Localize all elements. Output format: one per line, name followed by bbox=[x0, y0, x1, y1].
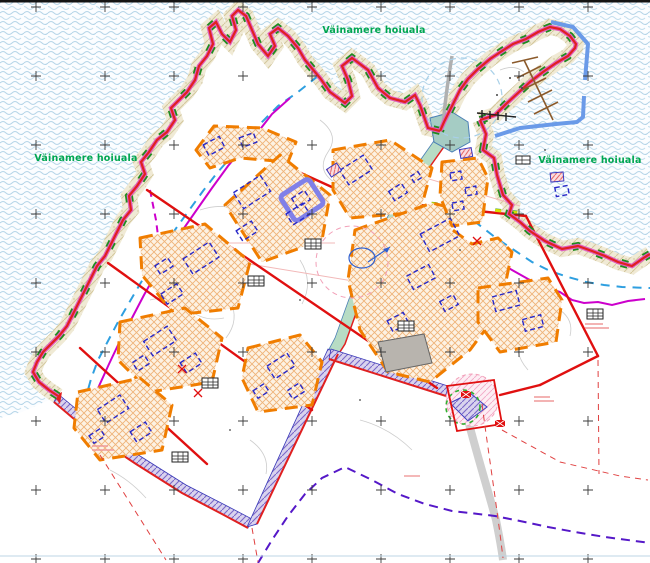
detail-plan-map: Väinamere hoiuala Väinamere hoiuala Väin… bbox=[0, 0, 650, 563]
plot-data-table-icon bbox=[398, 321, 414, 331]
top-edge bbox=[0, 0, 650, 3]
building-envelope-polygon bbox=[242, 335, 322, 412]
transformer-icon bbox=[495, 420, 505, 427]
plot-data-table-icon bbox=[587, 309, 603, 319]
plot-data-table-icon bbox=[305, 239, 321, 249]
protected-area-label-top: Väinamere hoiuala bbox=[322, 25, 425, 36]
protected-area-label-left: Väinamere hoiuala bbox=[34, 153, 137, 164]
plot-data-table-icon bbox=[516, 156, 530, 164]
transformer-icon bbox=[461, 391, 471, 398]
bottom-edge-line bbox=[0, 556, 650, 557]
protected-area-label-right: Väinamere hoiuala bbox=[538, 155, 641, 166]
plot-data-table-icon bbox=[202, 378, 218, 388]
plot-data-table-icon bbox=[248, 276, 264, 286]
plot-data-table-icon bbox=[172, 452, 188, 462]
building-envelope-polygon bbox=[478, 278, 562, 352]
map-canvas: Väinamere hoiuala Väinamere hoiuala Väin… bbox=[0, 0, 650, 563]
